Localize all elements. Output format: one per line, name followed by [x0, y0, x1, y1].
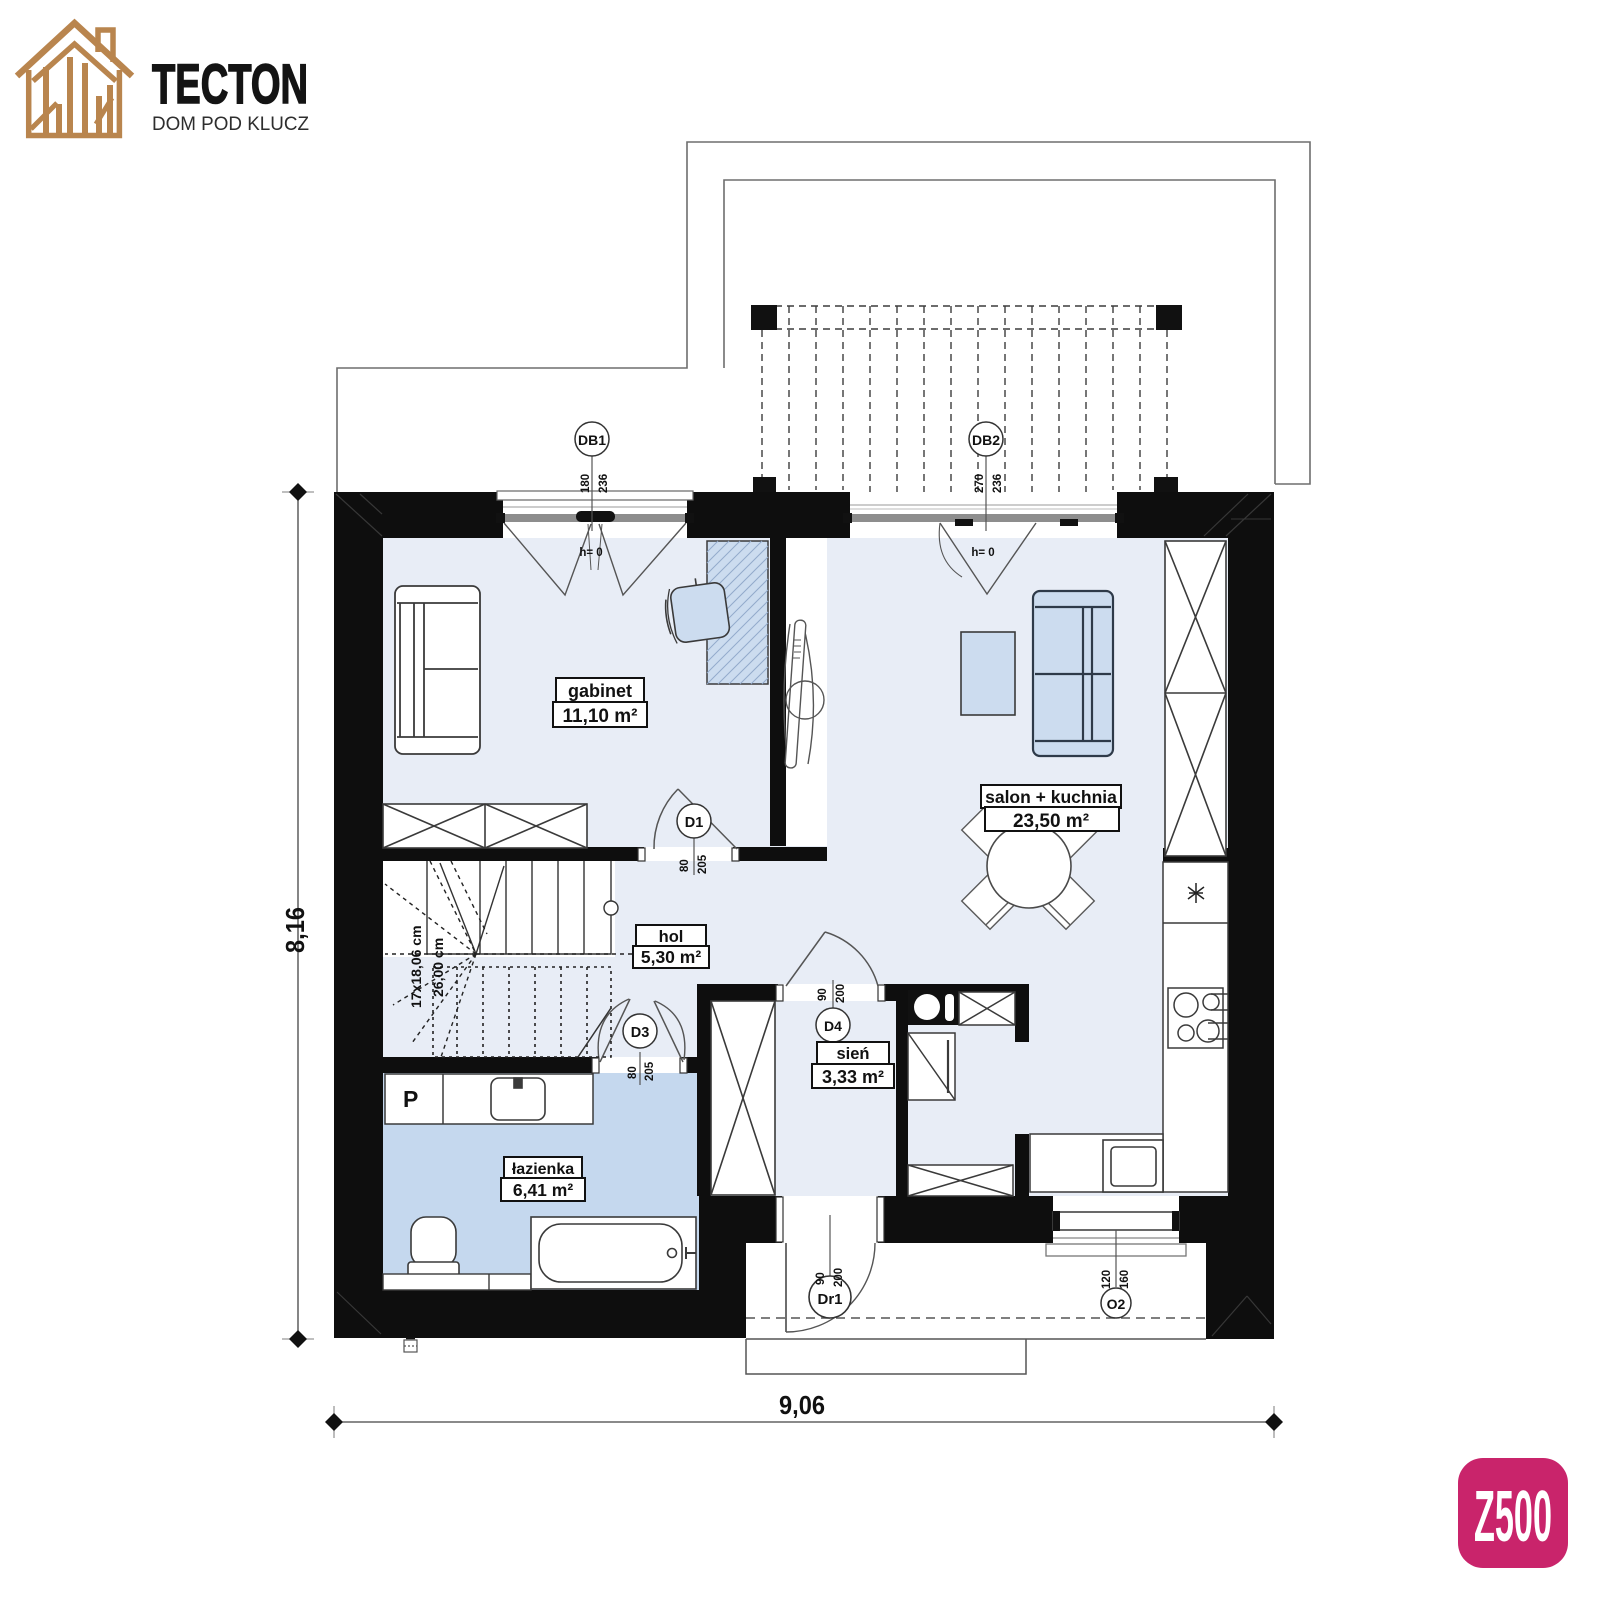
svg-text:160: 160 [1119, 1270, 1131, 1289]
svg-text:łazienka: łazienka [512, 1161, 574, 1178]
svg-text:236: 236 [992, 474, 1004, 493]
svg-text:80: 80 [627, 1066, 639, 1079]
svg-text:DB1: DB1 [578, 432, 606, 448]
svg-text:D3: D3 [631, 1025, 650, 1041]
svg-text:DOM POD KLUCZ: DOM POD KLUCZ [152, 113, 309, 135]
svg-text:3,33 m²: 3,33 m² [822, 1067, 884, 1087]
svg-text:Dr1: Dr1 [817, 1291, 842, 1308]
svg-text:hol: hol [659, 928, 684, 946]
svg-text:270: 270 [974, 474, 986, 493]
svg-text:h= 0: h= 0 [579, 547, 602, 559]
svg-text:h= 0: h= 0 [971, 547, 994, 559]
svg-text:P: P [403, 1086, 418, 1112]
svg-text:TECTON: TECTON [152, 52, 308, 115]
svg-text:120: 120 [1101, 1270, 1113, 1289]
svg-text:23,50 m²: 23,50 m² [1013, 811, 1089, 832]
svg-text:6,41 m²: 6,41 m² [513, 1180, 573, 1200]
svg-text:D4: D4 [824, 1018, 842, 1034]
svg-text:gabinet: gabinet [568, 681, 632, 701]
svg-text:salon + kuchnia: salon + kuchnia [985, 787, 1117, 807]
svg-text:17x18,06 cm: 17x18,06 cm [408, 925, 424, 1008]
svg-text:200: 200 [835, 984, 847, 1003]
svg-text:5,30 m²: 5,30 m² [641, 947, 701, 967]
svg-text:90: 90 [817, 988, 829, 1001]
svg-text:8,16: 8,16 [280, 907, 310, 953]
svg-text:90: 90 [815, 1272, 827, 1285]
svg-text:205: 205 [697, 854, 709, 874]
svg-text:80: 80 [679, 859, 691, 872]
svg-text:11,10 m²: 11,10 m² [563, 706, 638, 727]
svg-text:sień: sień [836, 1045, 869, 1063]
svg-text:D1: D1 [685, 815, 704, 831]
svg-text:200: 200 [833, 1268, 845, 1287]
svg-text:9,06: 9,06 [779, 1390, 825, 1420]
svg-text:Z500: Z500 [1474, 1477, 1552, 1557]
svg-text:180: 180 [580, 474, 592, 493]
svg-text:236: 236 [598, 474, 610, 493]
svg-text:205: 205 [644, 1061, 656, 1081]
svg-text:O2: O2 [1107, 1296, 1126, 1312]
svg-text:26,00 cm: 26,00 cm [430, 938, 446, 997]
svg-text:DB2: DB2 [972, 432, 1000, 448]
